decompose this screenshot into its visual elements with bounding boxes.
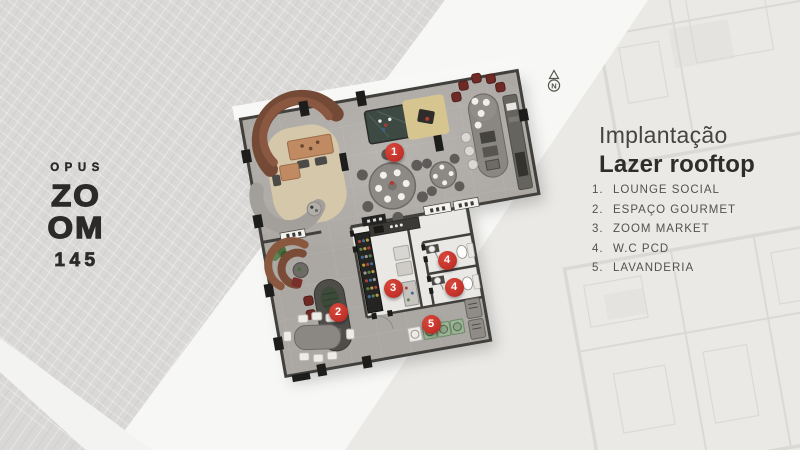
legend-item-wc-pcd: 4.W.C PCD — [592, 243, 736, 255]
brand-logo: OPUS ZO OM 145 — [28, 162, 122, 272]
legend-label: ESPAÇO GOURMET — [613, 204, 736, 216]
brand-number: 145 — [28, 250, 122, 272]
legend-item-espaco-gourmet: 2.ESPAÇO GOURMET — [592, 204, 736, 216]
plan-marker-1: 1 — [385, 143, 404, 162]
legend-num: 1. — [592, 184, 613, 196]
brand-word-top: ZO — [25, 179, 125, 212]
north-label: N — [551, 81, 556, 90]
plan-marker-4a: 4 — [438, 251, 457, 270]
legend-num: 4. — [592, 243, 613, 255]
legend-label: W.C PCD — [613, 243, 669, 255]
plan-marker-3: 3 — [384, 279, 403, 298]
legend-label: LOUNGE SOCIAL — [613, 184, 720, 196]
legend-num: 2. — [592, 204, 613, 216]
plan-marker-2: 2 — [329, 303, 348, 322]
legend-num: 5. — [592, 262, 613, 274]
plan-heading: Implantação Lazer rooftop — [599, 122, 755, 179]
legend-num: 3. — [592, 223, 613, 235]
heading-kicker: Implantação — [599, 122, 755, 149]
plan-marker-5: 5 — [422, 315, 441, 334]
legend-item-lavanderia: 5.LAVANDERIA — [592, 262, 736, 274]
brand-name: OPUS — [28, 162, 122, 174]
plan-legend: 1.LOUNGE SOCIAL 2.ESPAÇO GOURMET 3.ZOOM … — [592, 184, 736, 282]
heading-title: Lazer rooftop — [599, 151, 755, 179]
presentation-slide: { "brand": {"name": "OPUS", "word_top": … — [0, 0, 800, 450]
legend-label: LAVANDERIA — [613, 262, 694, 274]
brand-word-bottom: OM — [25, 211, 125, 244]
rug-games — [402, 94, 450, 141]
plan-marker-4b: 4 — [445, 278, 464, 297]
legend-item-zoom-market: 3.ZOOM MARKET — [592, 223, 736, 235]
legend-label: ZOOM MARKET — [613, 223, 710, 235]
legend-item-lounge-social: 1.LOUNGE SOCIAL — [592, 184, 736, 196]
